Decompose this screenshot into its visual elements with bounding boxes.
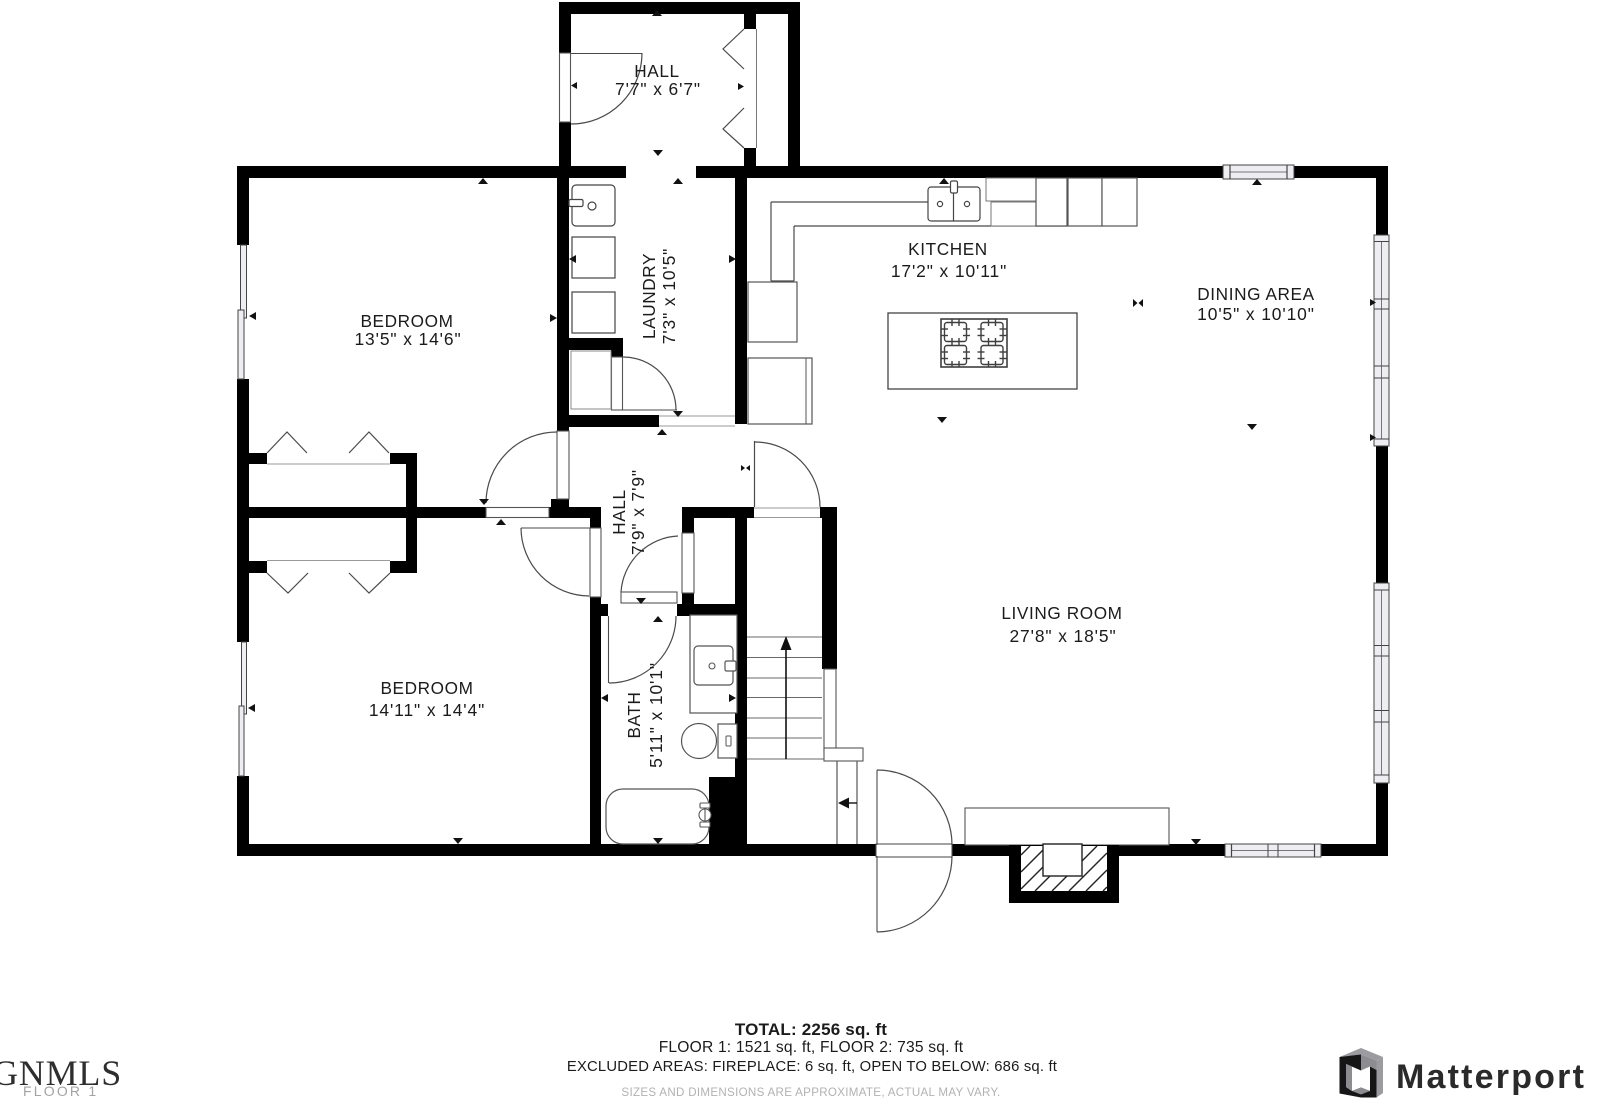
svg-text:13'5" x 14'6": 13'5" x 14'6" — [354, 329, 461, 349]
svg-text:EXCLUDED AREAS: FIREPLACE: 6 s: EXCLUDED AREAS: FIREPLACE: 6 sq. ft, OPE… — [567, 1059, 1057, 1075]
svg-text:HALL: HALL — [634, 61, 679, 81]
svg-text:LAUNDRY: LAUNDRY — [639, 253, 659, 339]
svg-text:BEDROOM: BEDROOM — [380, 678, 473, 698]
svg-text:27'8" x 18'5": 27'8" x 18'5" — [1009, 626, 1116, 646]
svg-text:DINING AREA: DINING AREA — [1197, 284, 1314, 304]
svg-text:7'9" x 7'9": 7'9" x 7'9" — [628, 469, 648, 555]
svg-text:14'11" x 14'4": 14'11" x 14'4" — [369, 700, 485, 720]
svg-text:TOTAL: 2256 sq. ft: TOTAL: 2256 sq. ft — [735, 1020, 887, 1039]
svg-text:FLOOR 1: FLOOR 1 — [23, 1083, 98, 1099]
svg-text:7'7" x 6'7": 7'7" x 6'7" — [615, 79, 701, 99]
svg-text:BATH: BATH — [624, 692, 644, 739]
svg-text:Matterport: Matterport — [1396, 1058, 1586, 1096]
svg-text:17'2" x 10'11": 17'2" x 10'11" — [891, 261, 1007, 281]
svg-text:BEDROOM: BEDROOM — [360, 311, 453, 331]
svg-text:7'3" x 10'5": 7'3" x 10'5" — [659, 248, 679, 345]
svg-text:SIZES AND DIMENSIONS ARE APPRO: SIZES AND DIMENSIONS ARE APPROXIMATE, AC… — [621, 1086, 1000, 1099]
svg-text:10'5" x 10'10": 10'5" x 10'10" — [1197, 304, 1315, 324]
svg-text:KITCHEN: KITCHEN — [908, 239, 988, 259]
svg-text:5'11" x 10'1": 5'11" x 10'1" — [646, 662, 666, 768]
svg-text:LIVING ROOM: LIVING ROOM — [1001, 603, 1122, 623]
svg-text:FLOOR 1: 1521 sq. ft, FLOOR 2:: FLOOR 1: 1521 sq. ft, FLOOR 2: 735 sq. f… — [659, 1039, 964, 1056]
svg-text:HALL: HALL — [609, 489, 629, 534]
